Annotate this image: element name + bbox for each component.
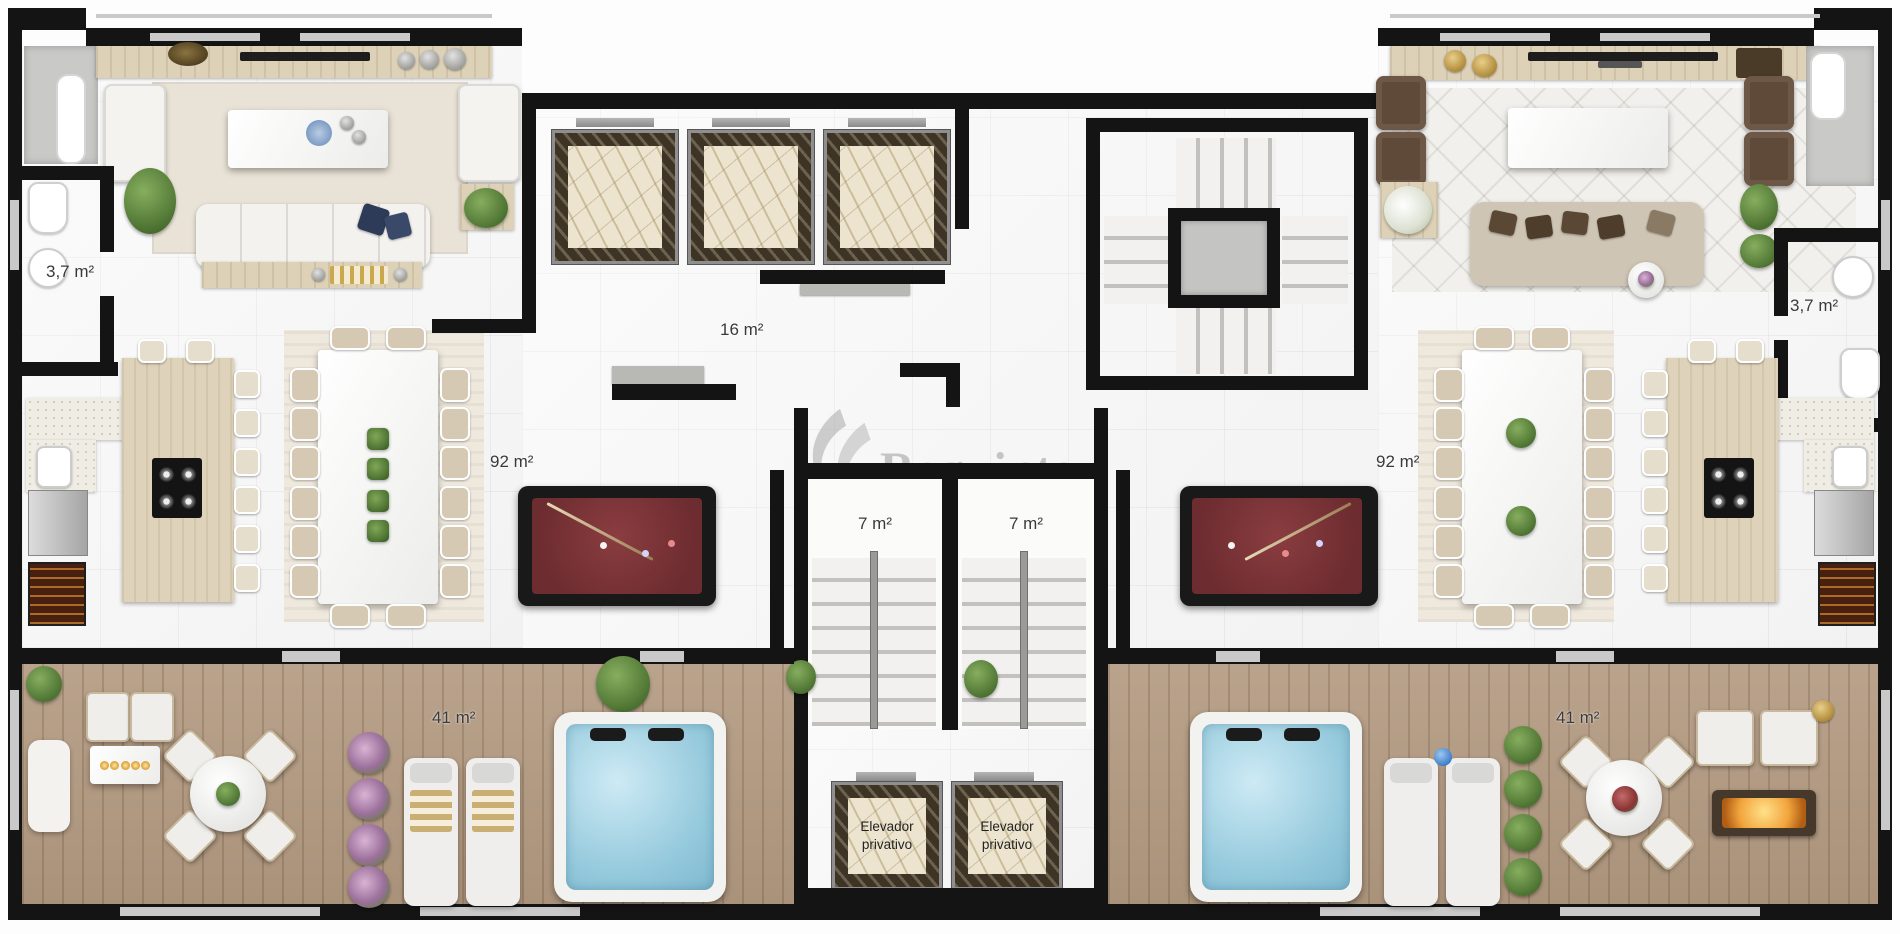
bar-stools [234, 370, 258, 592]
armchair-brown [1376, 132, 1426, 186]
chair [290, 525, 320, 559]
wall [1094, 730, 1108, 906]
elevator-cabin [824, 130, 950, 264]
hot-tub-water [1202, 724, 1350, 890]
wall [794, 730, 808, 906]
stool [234, 486, 260, 514]
stool [186, 339, 214, 363]
window [1881, 200, 1890, 270]
chair [386, 326, 426, 350]
right-terrace-area-label: 41 m² [1556, 708, 1599, 728]
stool [1642, 409, 1668, 437]
flower-pot [348, 824, 390, 866]
stair-rail [1021, 552, 1027, 728]
outdoor-armchair [1760, 710, 1818, 766]
wine-cellar [28, 562, 86, 626]
chair [1434, 486, 1464, 520]
table-centerpiece [367, 490, 389, 512]
chair [290, 407, 320, 441]
plant [1504, 770, 1542, 808]
tv-bracket [1598, 61, 1642, 68]
terrace-door [1216, 651, 1260, 662]
dining-chairs [440, 368, 466, 598]
chair [1584, 368, 1614, 402]
wall [432, 319, 536, 333]
decor-plate [352, 130, 366, 144]
plant [1740, 234, 1778, 268]
chair [1434, 407, 1464, 441]
lounger-pillow [1452, 763, 1494, 783]
kitchen-sink [1832, 446, 1868, 488]
wall [1788, 228, 1878, 242]
balcony-rail [96, 14, 492, 18]
stool [234, 448, 260, 476]
decor-rack [330, 266, 388, 284]
chair [1434, 446, 1464, 480]
window [1600, 33, 1710, 41]
wall [612, 384, 736, 400]
flower-pot [348, 778, 390, 820]
sun-lounger [466, 758, 520, 906]
wall [794, 888, 1108, 906]
elevator-cabin [552, 130, 678, 264]
hot-tub-water [566, 724, 714, 890]
outdoor-armchair [86, 692, 130, 742]
decor-vase [398, 52, 415, 69]
decor-plate [306, 120, 332, 146]
sun-lounger [1446, 758, 1500, 906]
flower-pot [348, 866, 390, 908]
stool [1642, 448, 1668, 476]
brown-pillow [1525, 214, 1554, 239]
armchair-brown [1376, 76, 1426, 130]
table-centerpiece [367, 520, 389, 542]
stool [234, 370, 260, 398]
wall [1086, 118, 1368, 132]
lounger-pillow [1390, 763, 1432, 783]
sink [1832, 256, 1874, 298]
stool [234, 409, 260, 437]
dining-chairs [330, 328, 426, 348]
chair [1584, 564, 1614, 598]
right-living-area-label: 92 m² [1376, 452, 1419, 472]
chair [440, 564, 470, 598]
kitchen-sink [36, 446, 72, 488]
table-centerpiece [367, 428, 389, 450]
private-stair-flight [962, 558, 1020, 726]
chair [1530, 604, 1570, 628]
billiard-ball [668, 540, 675, 547]
burner [181, 494, 196, 509]
elevator-door [576, 118, 654, 127]
window [1440, 33, 1550, 41]
terrace-door [640, 651, 684, 662]
right-bath-area-label: 3,7 m² [1790, 296, 1838, 316]
billiard-ball [600, 542, 607, 549]
pool-table-felt [532, 498, 702, 594]
burner [181, 467, 196, 482]
brown-pillow [1596, 214, 1625, 240]
star-sculpture [1444, 50, 1466, 72]
billiard-ball [1228, 542, 1235, 549]
table-centerpiece [216, 782, 240, 806]
main-stair-flight [1176, 308, 1276, 374]
candle [121, 761, 130, 770]
flower-pot [348, 732, 390, 774]
wall [1354, 118, 1368, 390]
chair [1474, 604, 1514, 628]
stool [1642, 525, 1668, 553]
burner [159, 467, 174, 482]
billiard-ball [1282, 550, 1289, 557]
billiard-ball [1316, 540, 1323, 547]
plant [464, 188, 508, 228]
chair [386, 604, 426, 628]
dining-chairs [330, 606, 426, 626]
tv [1528, 52, 1718, 61]
floor-plan: Requinte 16 m² [0, 0, 1900, 934]
bathtub [1810, 52, 1846, 120]
decor-knob [394, 268, 407, 281]
armchair-brown [1744, 76, 1794, 130]
terrace-door [1556, 651, 1614, 662]
wall [770, 470, 784, 664]
chair [440, 407, 470, 441]
chair [1434, 368, 1464, 402]
wall [1086, 376, 1368, 390]
wall [522, 93, 536, 333]
wall [1086, 118, 1100, 390]
elevator-door [856, 772, 916, 781]
elevator-marble-floor [568, 146, 662, 248]
chair [440, 525, 470, 559]
cooktop [1704, 458, 1754, 518]
window [150, 33, 260, 41]
decor-plate [340, 116, 354, 130]
candle [110, 761, 119, 770]
decor-sphere [1812, 700, 1834, 722]
flower-vase [1638, 271, 1654, 287]
wall [942, 463, 958, 730]
coffee-table [1508, 108, 1668, 168]
outdoor-armchair [130, 692, 174, 742]
toilet [1840, 348, 1880, 400]
wall [8, 8, 86, 30]
wall [522, 93, 1380, 109]
left-bath-area-label: 3,7 m² [46, 262, 94, 282]
private-stair-flight [812, 558, 870, 726]
outdoor-armchair [1696, 710, 1754, 766]
fire-flame [1722, 798, 1806, 828]
private-stair-flight [1028, 558, 1086, 726]
plant [26, 666, 62, 702]
lounger-cushion [472, 790, 514, 832]
chair [440, 486, 470, 520]
wall [100, 166, 114, 252]
star-sculpture [1472, 54, 1497, 77]
stool [1688, 339, 1716, 363]
lounger-cushion [410, 790, 452, 832]
armchair [458, 84, 520, 182]
bathtub [56, 74, 86, 164]
wall [1814, 8, 1892, 30]
tv [240, 52, 370, 61]
plant [964, 660, 998, 698]
hall-console [612, 366, 704, 384]
palm-plant [596, 656, 650, 712]
window [10, 690, 19, 830]
eagle-sculpture [168, 42, 208, 66]
table-centerpiece [367, 458, 389, 480]
decor-box [1736, 48, 1782, 78]
table-centerpiece [1612, 786, 1638, 812]
main-stair-flight [1104, 216, 1170, 304]
table-centerpiece [1506, 506, 1536, 536]
dining-chairs [1474, 606, 1570, 626]
main-stair-flight [1176, 138, 1276, 208]
main-stair-flight [1282, 216, 1348, 304]
elevator-marble-floor [840, 146, 934, 248]
sun-lounger [1384, 758, 1438, 906]
candle [141, 761, 150, 770]
burner [1733, 467, 1748, 482]
bar-stools [1642, 370, 1666, 592]
stool [1642, 486, 1668, 514]
wall [18, 362, 118, 376]
chair [1584, 407, 1614, 441]
plant [1740, 184, 1778, 230]
lounger-pillow [410, 763, 452, 783]
chair [1584, 486, 1614, 520]
wall [760, 270, 945, 284]
hot-tub-headrest [648, 728, 684, 741]
hot-tub-headrest [1226, 728, 1262, 741]
dining-chairs [290, 368, 316, 598]
cooktop [152, 458, 202, 518]
decor-vase [444, 48, 466, 70]
window [300, 33, 410, 41]
private-elevator-right: Elevador privativo [952, 782, 1062, 890]
chair [1584, 525, 1614, 559]
chair [1434, 564, 1464, 598]
hall-shelf [800, 284, 910, 295]
refrigerator [1814, 490, 1874, 556]
stair-rail [871, 552, 877, 728]
private-elevator-left-label: Elevador privativo [835, 785, 939, 887]
bar-stools [138, 340, 214, 362]
wine-cellar [1818, 562, 1876, 626]
palm-plant [124, 168, 176, 234]
private-elevator-right-label: Elevador privativo [955, 785, 1059, 887]
terrace-door [282, 651, 340, 662]
stool [1642, 564, 1668, 592]
chair [290, 564, 320, 598]
stair-shaft [1181, 221, 1267, 295]
outdoor-sofa [28, 740, 70, 832]
bar-stools [1688, 340, 1764, 362]
stool [234, 525, 260, 553]
window [1320, 907, 1480, 916]
balcony-rail [1390, 14, 1820, 18]
candle [100, 761, 109, 770]
private-stair-flight [878, 558, 936, 726]
burner [1711, 467, 1726, 482]
hot-tub-headrest [590, 728, 626, 741]
plant [1504, 726, 1542, 764]
left-stair-area-label: 7 m² [808, 514, 942, 534]
chair [1584, 446, 1614, 480]
plant [1504, 858, 1542, 896]
dining-chairs [1434, 368, 1460, 598]
chair [1434, 525, 1464, 559]
private-elevator-left: Elevador privativo [832, 782, 942, 890]
window [120, 907, 320, 916]
armchair-brown [1744, 132, 1794, 186]
burner [159, 494, 174, 509]
stool [234, 564, 260, 592]
refrigerator [28, 490, 88, 556]
burner [1733, 494, 1748, 509]
dining-chairs [1584, 368, 1610, 598]
wall [1774, 228, 1788, 316]
sun-lounger [404, 758, 458, 906]
elevator-marble-floor [704, 146, 798, 248]
window [1881, 690, 1890, 830]
elevator-cabin [688, 130, 814, 264]
candle [131, 761, 140, 770]
stool [1736, 339, 1764, 363]
hot-tub-headrest [1284, 728, 1320, 741]
plant [1504, 814, 1542, 852]
left-living-area-label: 92 m² [490, 452, 533, 472]
decor-knob [312, 268, 325, 281]
stool [138, 339, 166, 363]
chair [440, 446, 470, 480]
chair [1474, 326, 1514, 350]
wall [1094, 408, 1108, 730]
candle-row [100, 760, 150, 770]
window [10, 200, 19, 270]
burner [1711, 494, 1726, 509]
window [420, 907, 580, 916]
chair [330, 326, 370, 350]
wall [946, 363, 960, 407]
stool [1642, 370, 1668, 398]
right-stair-area-label: 7 m² [958, 514, 1094, 534]
hall-area-label: 16 m² [720, 320, 763, 340]
billiard-ball [642, 550, 649, 557]
table-centerpiece [1506, 418, 1536, 448]
chair [290, 368, 320, 402]
window [1560, 907, 1760, 916]
elevator-door [712, 118, 790, 127]
chair [330, 604, 370, 628]
left-terrace-area-label: 41 m² [432, 708, 475, 728]
wall [1116, 470, 1130, 664]
elevator-door [848, 118, 926, 127]
dining-chairs [1474, 328, 1570, 348]
chair [290, 486, 320, 520]
plant [786, 660, 816, 694]
elevator-door [974, 772, 1034, 781]
white-flowers [1384, 186, 1432, 234]
chair [290, 446, 320, 480]
decor-vase [420, 50, 439, 69]
chair [1530, 326, 1570, 350]
chair [440, 368, 470, 402]
toilet [28, 182, 68, 234]
right-dining-table [1462, 350, 1582, 604]
lounger-pillow [472, 763, 514, 783]
beach-ball [1434, 748, 1452, 766]
wall [955, 109, 969, 229]
brown-pillow [1561, 210, 1589, 235]
